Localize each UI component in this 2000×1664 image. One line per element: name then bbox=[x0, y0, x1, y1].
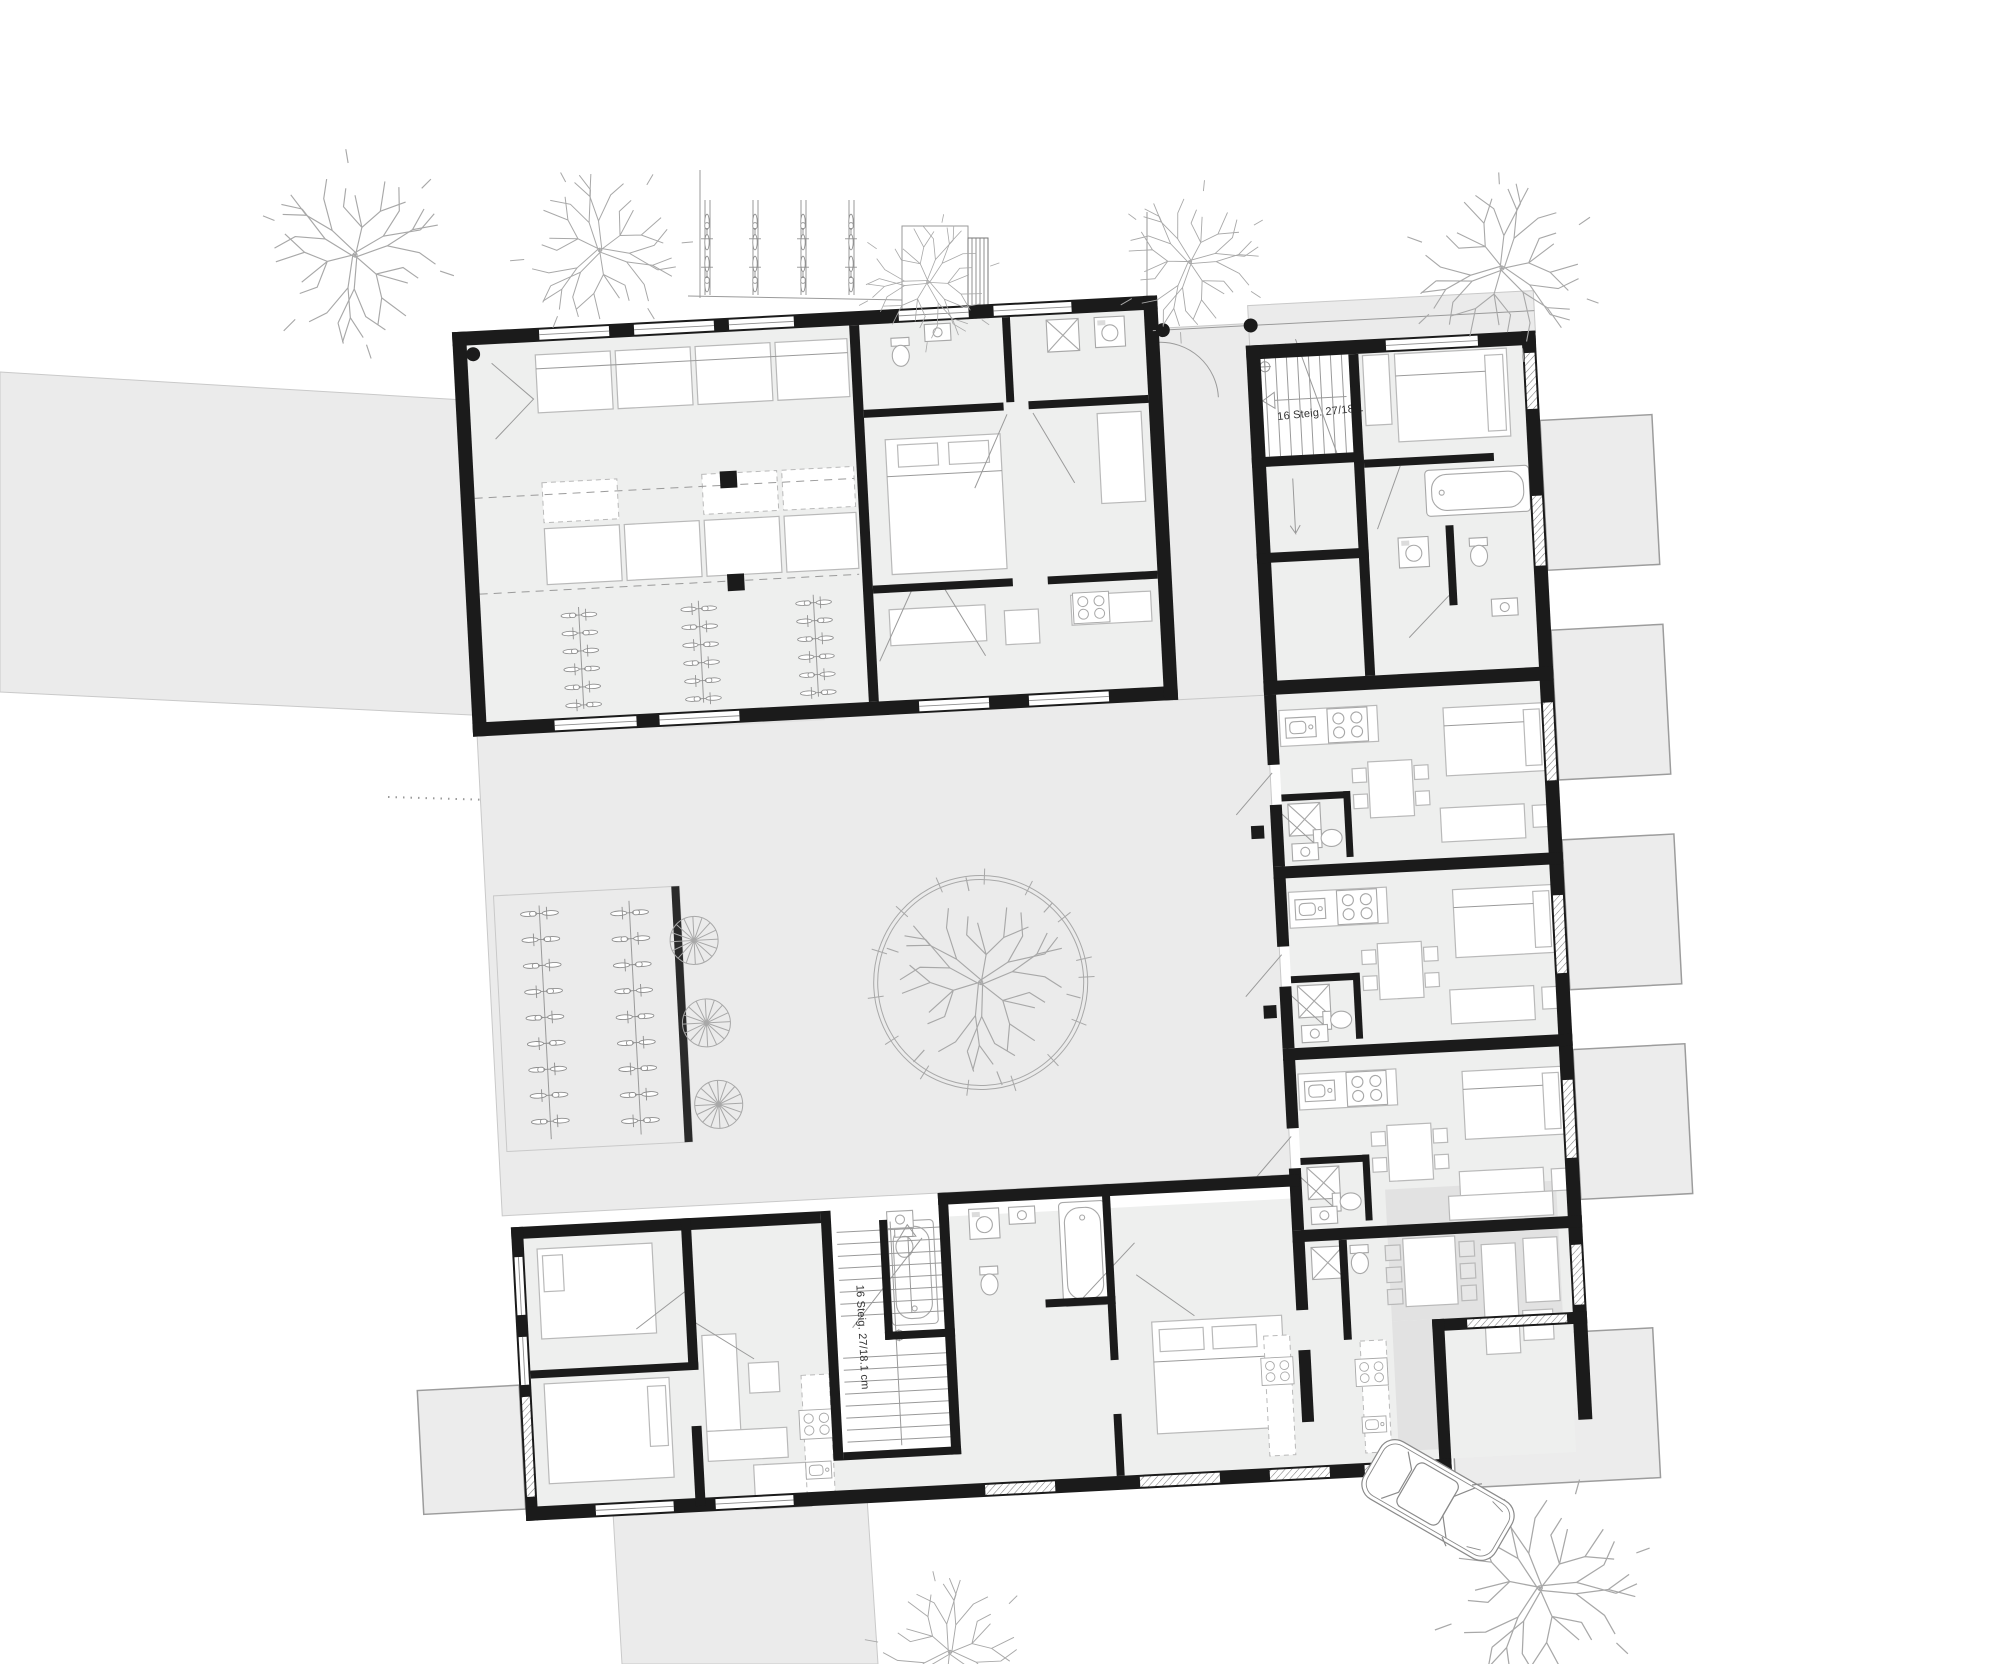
wardrobe bbox=[1362, 354, 1392, 425]
sofa-l bbox=[702, 1334, 741, 1432]
floor-plan-canvas: 16 Steig. 27/18.1 cm bbox=[0, 0, 2000, 1664]
balcony-4 bbox=[1573, 1044, 1693, 1200]
sofa bbox=[1523, 1237, 1560, 1303]
dining-table bbox=[1403, 1236, 1458, 1307]
armchair bbox=[1004, 609, 1040, 645]
west-bike-yard bbox=[493, 886, 692, 1151]
wardrobe bbox=[1097, 411, 1146, 503]
courtyard-column bbox=[1263, 1005, 1277, 1019]
courtyard-column bbox=[1251, 825, 1265, 839]
column bbox=[727, 573, 745, 591]
site-line-3 bbox=[688, 296, 902, 300]
coffee-table bbox=[748, 1362, 780, 1394]
sofa bbox=[707, 1427, 788, 1461]
shelf bbox=[1481, 1243, 1521, 1355]
building: 16 Steig. 27/18.1 cm bbox=[362, 270, 1707, 1543]
sofa bbox=[889, 605, 987, 646]
road-west bbox=[0, 372, 497, 716]
sideboard bbox=[1449, 1191, 1554, 1220]
outdoor-bike-racks bbox=[701, 200, 857, 295]
balcony-1 bbox=[1540, 415, 1660, 571]
column bbox=[720, 471, 738, 489]
balcony-3 bbox=[1562, 834, 1682, 990]
balcony-2 bbox=[1551, 624, 1671, 780]
floor-plan: 16 Steig. 27/18.1 cm bbox=[0, 0, 2000, 1664]
terrace-sw bbox=[417, 1385, 525, 1514]
tree-1 bbox=[252, 149, 458, 362]
